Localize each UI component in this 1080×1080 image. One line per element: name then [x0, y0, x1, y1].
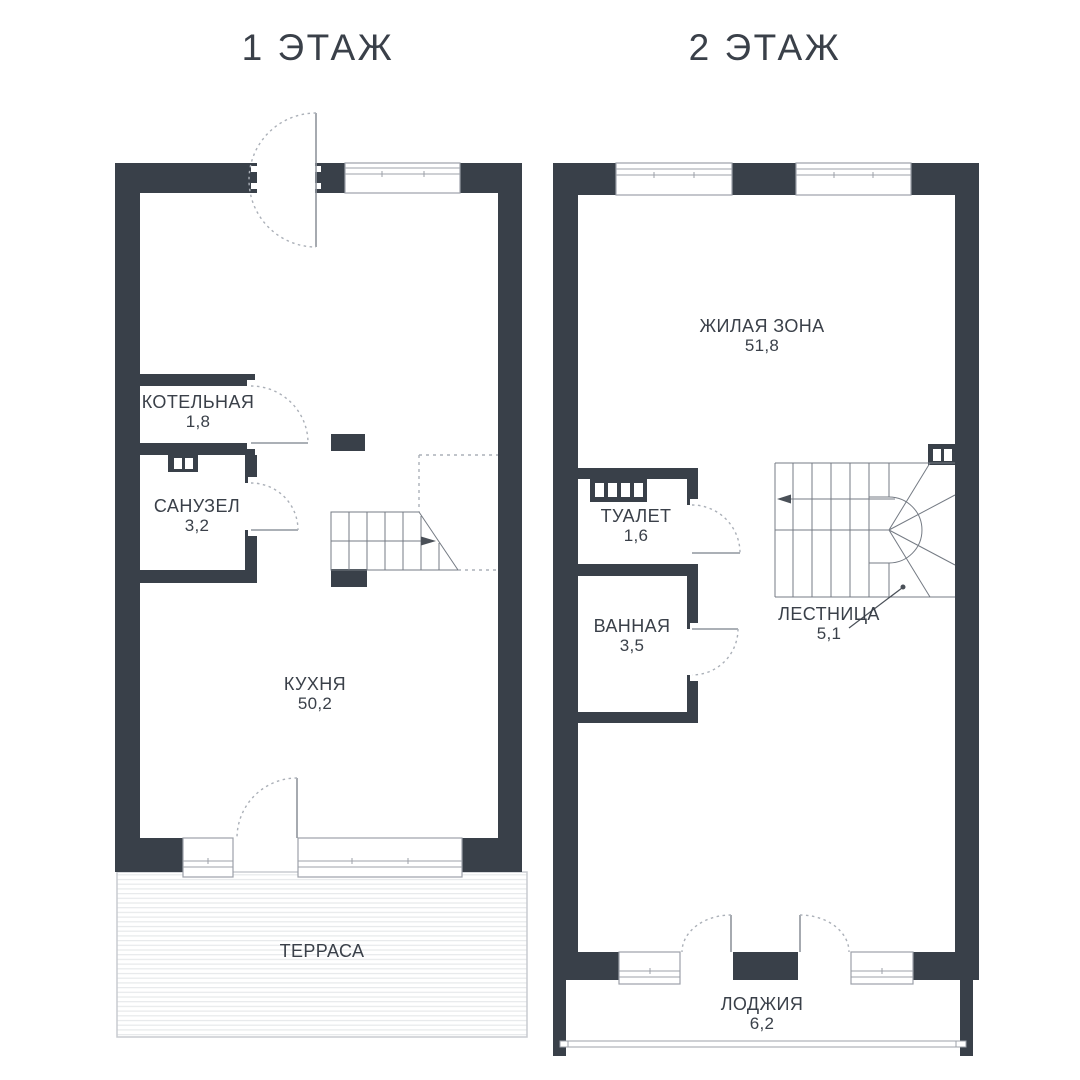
room-name: ЛЕСТНИЦА — [778, 604, 880, 624]
window-top — [345, 163, 460, 193]
floor2-title: 2 ЭТАЖ — [689, 27, 842, 69]
room-name: КОТЕЛЬНАЯ — [142, 392, 255, 412]
vannaya-door-swing-icon — [692, 629, 738, 675]
room-label-lestnitsa: ЛЕСТНИЦА 5,1 — [778, 604, 880, 644]
stair-down-arrow-icon — [777, 495, 791, 504]
room-name: ЛОДЖИЯ — [721, 994, 804, 1014]
staircase-floor1 — [331, 455, 498, 570]
floor1-title: 1 ЭТАЖ — [242, 27, 395, 69]
room-name: ТУАЛЕТ — [601, 506, 672, 526]
loggia-door-right-swing-icon — [800, 915, 849, 952]
room-name: ВАННАЯ — [594, 616, 671, 636]
room-area: 1,8 — [142, 412, 255, 432]
vent-shaft-icon — [928, 444, 955, 465]
room-label-vannaya: ВАННАЯ 3,5 — [594, 616, 671, 656]
boiler-room-door-swing-icon — [251, 386, 308, 443]
room-area: 51,8 — [699, 336, 824, 356]
floorplan-page: 1 ЭТАЖ 2 ЭТАЖ КОТЕЛЬНАЯ 1,8 САНУЗЕЛ 3,2 … — [0, 0, 1080, 1080]
floor2-plan — [553, 163, 979, 1056]
room-area: 50,2 — [284, 694, 346, 714]
room-label-sanuzel: САНУЗЕЛ 3,2 — [154, 496, 240, 536]
room-label-kotelnaya: КОТЕЛЬНАЯ 1,8 — [142, 392, 255, 432]
kitchen-terrace-door-swing-icon — [237, 778, 297, 838]
room-label-terrasa: ТЕРРАСА — [280, 941, 365, 961]
window-top-left — [616, 163, 732, 195]
floor1-plan — [115, 113, 527, 1037]
room-label-zhilaya-zona: ЖИЛАЯ ЗОНА 51,8 — [699, 316, 824, 356]
room-area: 6,2 — [721, 1014, 804, 1034]
window-bottom-right — [851, 952, 913, 984]
window-bottom-left — [619, 952, 680, 984]
window-bottom-left — [183, 838, 233, 877]
floor2-walls — [553, 163, 979, 1056]
tualet-door-swing-icon — [692, 505, 740, 553]
room-area: 3,2 — [154, 516, 240, 536]
room-name: ТЕРРАСА — [280, 941, 365, 961]
room-label-lodzhiya: ЛОДЖИЯ 6,2 — [721, 994, 804, 1034]
room-name: САНУЗЕЛ — [154, 496, 240, 516]
floor1-door-jambs — [247, 166, 321, 536]
room-area: 3,5 — [594, 636, 671, 656]
window-bottom-right — [298, 838, 462, 877]
room-name: КУХНЯ — [284, 674, 346, 694]
room-area: 5,1 — [778, 624, 880, 644]
floorplan-canvas — [0, 0, 1080, 1080]
room-name: ЖИЛАЯ ЗОНА — [699, 316, 824, 336]
room-area: 1,6 — [601, 526, 672, 546]
sanuzel-door-swing-icon — [251, 483, 298, 530]
vent-shaft-icon — [168, 455, 198, 472]
room-label-kuhnya: КУХНЯ 50,2 — [284, 674, 346, 714]
stair-up-arrow-icon — [421, 537, 436, 546]
entrance-door-swing-icon — [249, 113, 316, 247]
balcony-railing — [560, 1041, 966, 1047]
radiator-icon — [590, 479, 647, 502]
window-top-right — [796, 163, 911, 195]
loggia-door-left-swing-icon — [682, 915, 731, 952]
room-label-tualet: ТУАЛЕТ 1,6 — [601, 506, 672, 546]
